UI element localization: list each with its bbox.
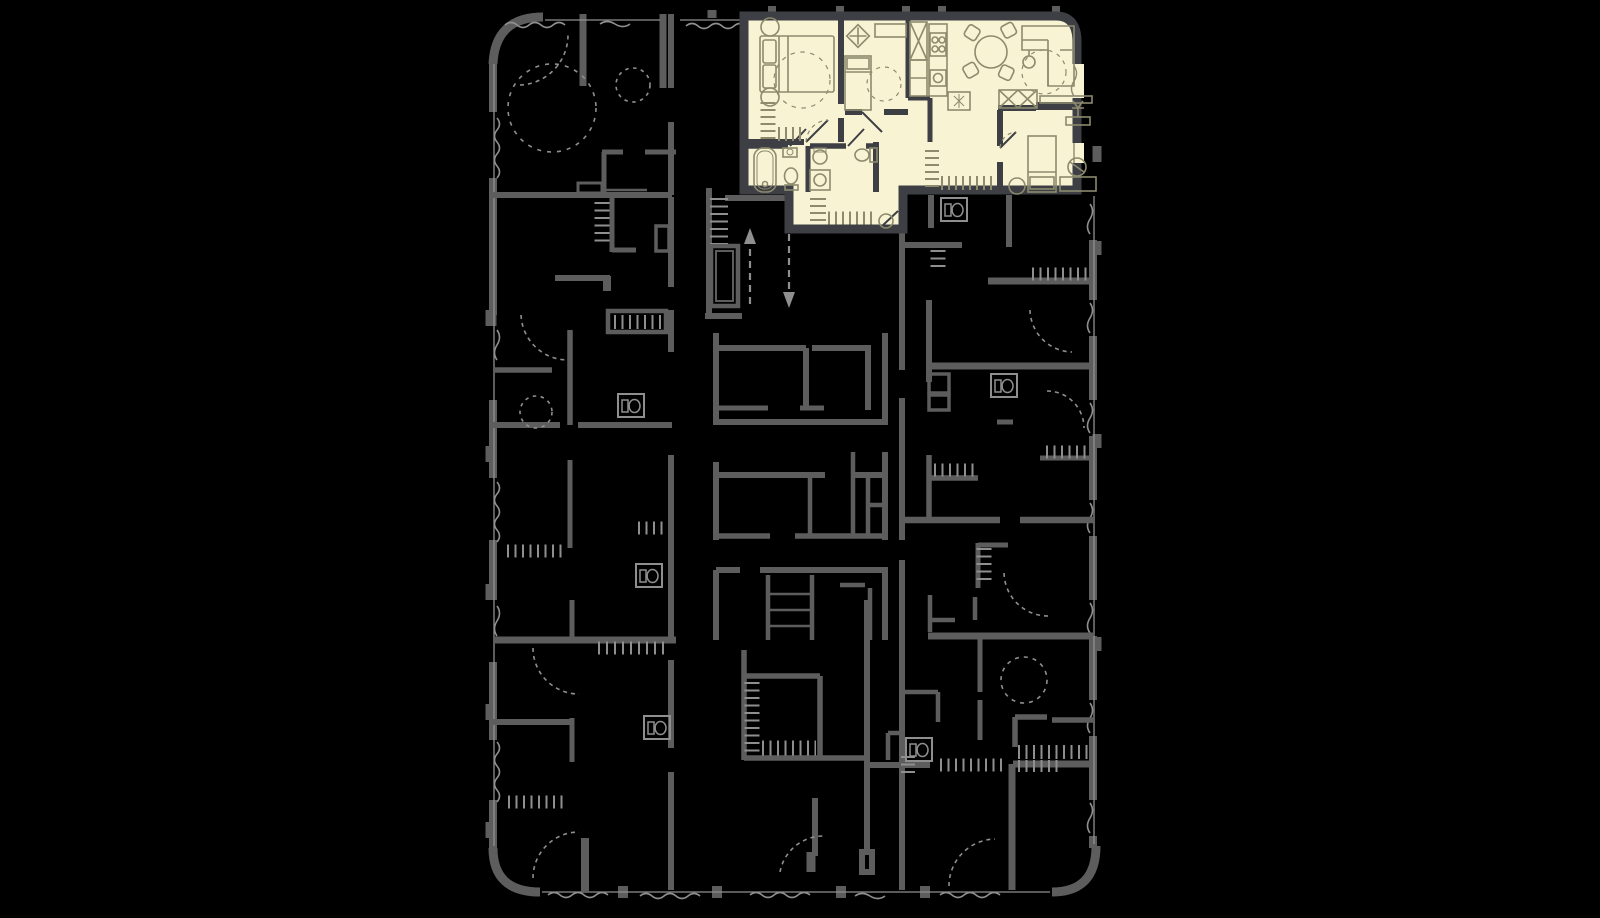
floor-plan-stage	[0, 0, 1600, 918]
floor-plan-svg	[0, 0, 1600, 918]
